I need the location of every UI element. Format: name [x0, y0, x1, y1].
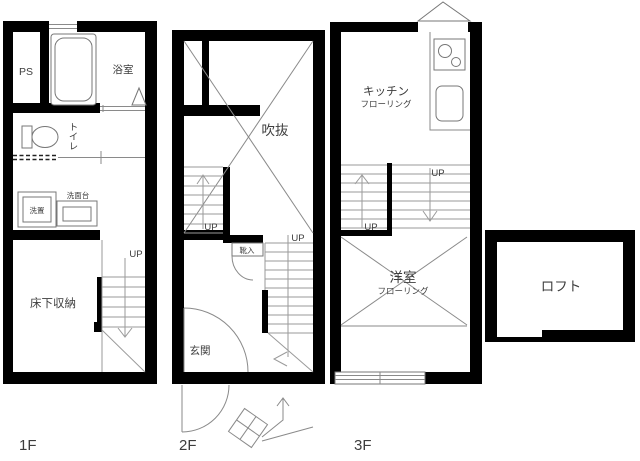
label-western-room: 洋室	[390, 269, 417, 285]
entry-mark	[229, 398, 313, 447]
floor-2f: 吹抜 靴入 玄関 UP UP 2F	[172, 30, 325, 454]
label-kitchen-flooring: フローリング	[360, 99, 412, 109]
floor-plan-page: PS 浴室 トイレ 洗置 洗面台 床下収納 UP 1F	[0, 0, 640, 461]
outside-door-arc	[182, 385, 229, 432]
label-kitchen: キッチン	[363, 85, 409, 98]
label-western-flooring: フローリング	[377, 286, 429, 296]
label-up-2f-right: UP	[291, 233, 304, 244]
label-shoe-box: 靴入	[240, 245, 255, 255]
loft: ロフト	[485, 230, 635, 342]
label-up-1f: UP	[129, 249, 142, 260]
label-up-3f-right: UP	[431, 168, 444, 179]
bath-door-track	[100, 105, 145, 112]
bathtub-icon	[51, 34, 96, 105]
entrance-door-arc	[184, 308, 248, 372]
floor-name-3f: 3F	[354, 437, 372, 454]
label-entrance: 玄関	[190, 344, 211, 357]
label-toilet: トイレ	[67, 122, 79, 151]
window-1f	[49, 21, 77, 32]
sink-icon	[436, 86, 463, 121]
label-loft: ロフト	[541, 279, 582, 294]
toilet-icon	[22, 126, 58, 148]
label-up-3f-left: UP	[364, 222, 377, 233]
floor-plan-drawing: PS 浴室 トイレ 洗置 洗面台 床下収納 UP 1F	[0, 0, 640, 461]
label-underfloor-storage: 床下収納	[30, 296, 76, 310]
bath-door-icon	[132, 88, 146, 105]
vanity-icon	[57, 201, 97, 226]
toilet-partition	[13, 151, 145, 164]
label-bath: 浴室	[113, 63, 134, 76]
loft-opening	[497, 330, 542, 337]
walls-3f	[330, 22, 482, 384]
floor-1f: PS 浴室 トイレ 洗置 洗面台 床下収納 UP 1F	[3, 21, 157, 454]
walls-2f	[172, 30, 325, 384]
label-up-2f-left: UP	[204, 222, 217, 233]
floor-3f: キッチン フローリング 洋室 フローリング UP UP 3F	[330, 2, 482, 454]
label-washer: 洗置	[30, 205, 45, 215]
stairs-3f	[341, 165, 470, 228]
stove-icon	[434, 39, 465, 70]
floor-name-2f: 2F	[179, 437, 197, 454]
label-ps: PS	[19, 66, 33, 78]
label-void: 吹抜	[262, 123, 289, 138]
gable-icon	[418, 2, 470, 32]
window-3f	[335, 372, 425, 384]
floor-name-1f: 1F	[19, 437, 37, 454]
label-vanity: 洗面台	[67, 190, 90, 200]
stairs-2f-lower	[265, 235, 313, 372]
